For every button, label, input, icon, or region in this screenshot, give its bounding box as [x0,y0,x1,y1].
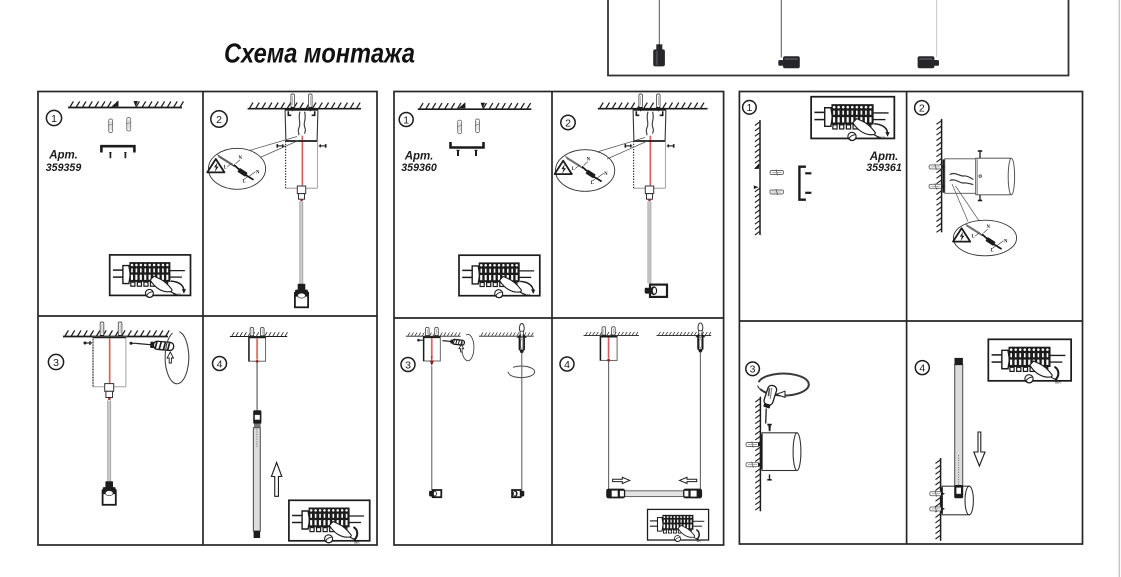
svg-text:N: N [1004,240,1008,245]
svg-text:Выкл.: Выкл. [876,136,885,140]
svg-text:1: 1 [403,114,409,126]
svg-text:Выкл.: Выкл. [522,293,531,297]
svg-text:3: 3 [750,364,756,376]
svg-text:359360: 359360 [401,162,437,174]
svg-text:N: N [587,158,591,163]
svg-text:вкл.: вкл. [354,541,360,545]
svg-text:2: 2 [565,117,571,129]
svg-text:1: 1 [51,113,57,125]
svg-text:3: 3 [53,357,59,369]
svg-text:3: 3 [405,359,411,371]
svg-text:L: L [572,167,575,172]
svg-text:N: N [987,225,991,230]
svg-text:Арт.: Арт. [404,151,434,163]
svg-text:2: 2 [919,103,925,115]
svg-text:359359: 359359 [46,162,82,174]
svg-text:359361: 359361 [866,162,902,174]
svg-text:4: 4 [919,362,925,374]
svg-text:4: 4 [217,358,223,370]
svg-text:2: 2 [216,114,222,126]
svg-text:N: N [256,170,260,175]
svg-text:1: 1 [746,102,752,114]
svg-text:вкл.: вкл. [1055,381,1061,385]
svg-text:N: N [239,156,243,161]
svg-text:L: L [972,235,975,240]
svg-text:L: L [991,249,994,254]
svg-text:Арт.: Арт. [48,149,78,161]
svg-text:Выкл.: Выкл. [173,293,182,297]
svg-text:4: 4 [564,359,570,371]
svg-text:Схема монтажа: Схема монтажа [224,38,415,69]
svg-text:L: L [591,181,594,186]
svg-text:вкл.: вкл. [697,540,702,543]
svg-text:L: L [243,179,246,184]
svg-text:N: N [604,172,608,177]
svg-text:L: L [224,165,227,170]
